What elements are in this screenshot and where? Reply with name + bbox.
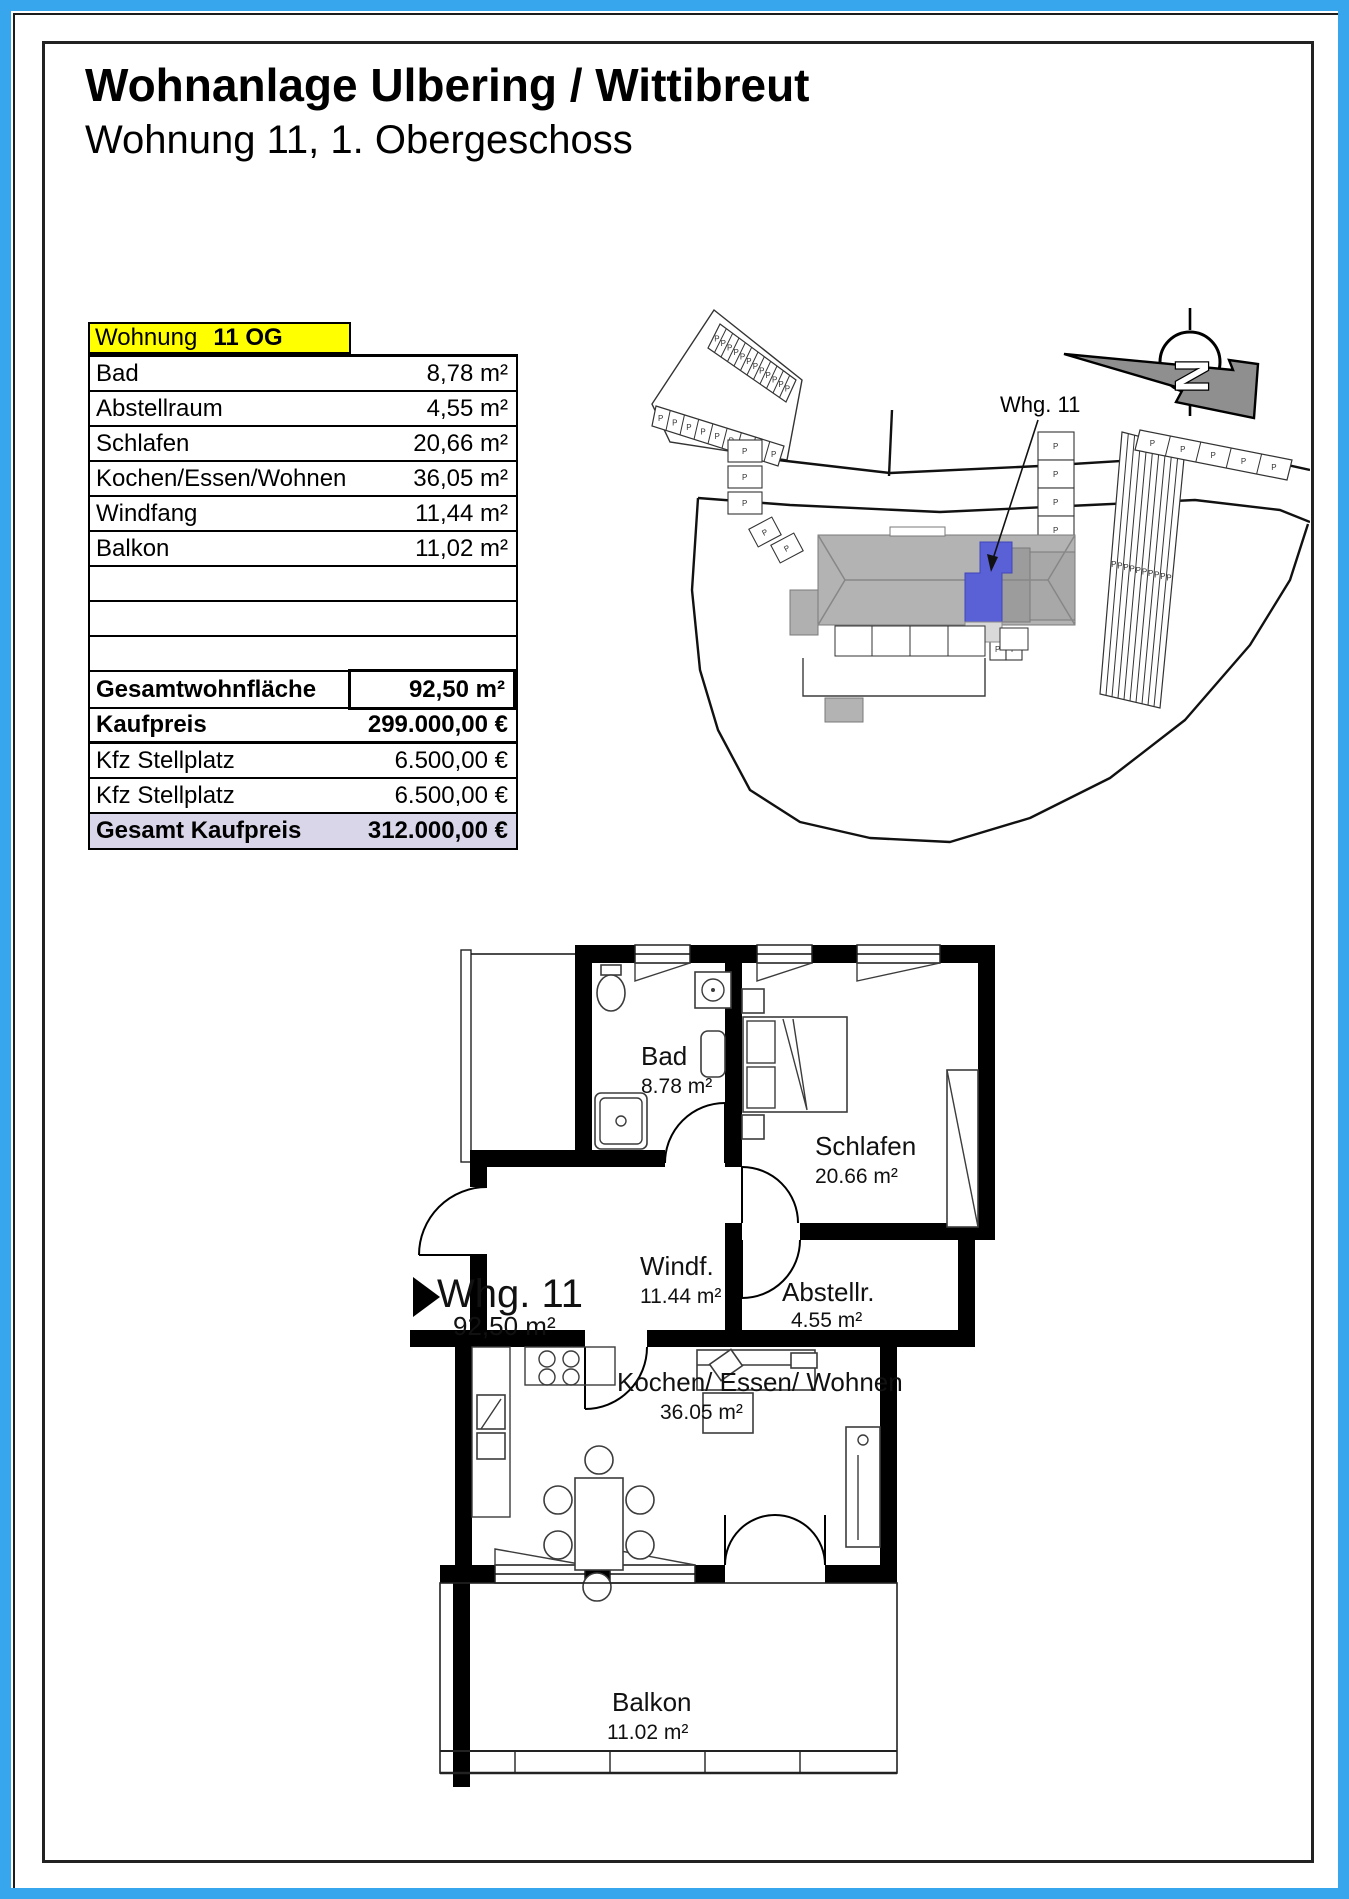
table-row-empty: [90, 602, 516, 637]
room-label-abstell: Abstellr.: [782, 1277, 875, 1307]
balcony: [440, 1583, 897, 1773]
parking-stall-label: P: [753, 362, 758, 371]
parking-stall-label: P: [1123, 563, 1128, 572]
room-label-schlafen: Schlafen: [815, 1131, 916, 1161]
gesamt-value: 312.000,00 €: [368, 817, 516, 845]
room-label: Bad: [90, 360, 139, 388]
north-letter: N: [1166, 359, 1218, 392]
room-label: Schlafen: [90, 430, 189, 458]
total-area-label: Gesamtwohnfläche: [90, 676, 316, 704]
room-label: Windfang: [90, 500, 197, 528]
parking-stall-label: P: [742, 473, 747, 482]
room-label: Abstellraum: [90, 395, 223, 423]
parking-stall-label: P: [1241, 457, 1246, 466]
room-value: 11,44 m²: [415, 500, 516, 528]
parking-stall-label: P: [1053, 498, 1058, 507]
parking-stall-label: P: [759, 366, 764, 375]
area-price-table: Wohnung 11 OG Bad 8,78 m² Abstellraum 4,…: [88, 322, 518, 850]
room-labels: Bad 8.78 m² Schlafen 20.66 m² Windf. 11.…: [437, 1041, 916, 1744]
stellplatz-row: Kfz Stellplatz 6.500,00 €: [90, 744, 516, 779]
room-area-windfang: 11.44 m²: [640, 1285, 721, 1308]
parking-stall-label: P: [1154, 570, 1159, 579]
room-area-abstell: 4.55 m²: [791, 1309, 862, 1332]
parking-stall-label: P: [740, 353, 745, 362]
table-header-cell: Wohnung 11 OG: [88, 322, 351, 354]
room-value: 4,55 m²: [427, 395, 516, 423]
expose-page: Wohnanlage Ulbering / Wittibreut Wohnung…: [0, 0, 1349, 1899]
kaufpreis-label: Kaufpreis: [90, 711, 207, 739]
parking-stall-label: P: [672, 419, 677, 428]
room-area-bad: 8.78 m²: [641, 1075, 712, 1098]
room-area-schlafen: 20.66 m²: [815, 1165, 898, 1188]
room-label-bad: Bad: [641, 1041, 687, 1071]
room-area-wohnen: 36.05 m²: [660, 1401, 743, 1424]
stellplatz-row: Kfz Stellplatz 6.500,00 €: [90, 779, 516, 814]
table-row-empty: [90, 567, 516, 602]
parking-stall-label: P: [1166, 573, 1171, 582]
room-value: 11,02 m²: [415, 535, 516, 563]
parking-stall-label: P: [721, 339, 726, 348]
parking-stall-label: P: [772, 376, 777, 385]
parking-stall-label: P: [1150, 439, 1155, 448]
parking-stall-label: P: [727, 343, 732, 352]
parking-stall-label: P: [1053, 470, 1058, 479]
floor-plan: Bad 8.78 m² Schlafen 20.66 m² Windf. 11.…: [395, 925, 1010, 1875]
parking-stall-label: P: [1160, 572, 1165, 581]
site-plan: PPPPPPPPPPPP PPPPPPPPP PPPPPPPPPP PPPPP …: [640, 290, 1310, 850]
parking-stall-label: P: [1180, 445, 1185, 454]
parking-stall-label: P: [715, 432, 720, 441]
parking-stall-label: P: [1142, 567, 1147, 576]
road-lower-line: [698, 498, 1310, 522]
parking-stall-label: P: [742, 499, 747, 508]
gesamt-kaufpreis-row: Gesamt Kaufpreis 312.000,00 €: [90, 814, 516, 848]
stellplatz-value: 6.500,00 €: [395, 782, 516, 810]
parking-stall-label: P: [686, 423, 691, 432]
stellplatz-value: 6.500,00 €: [395, 747, 516, 775]
table-row: Bad 8,78 m²: [90, 357, 516, 392]
page-title: Wohnanlage Ulbering / Wittibreut: [85, 58, 810, 112]
room-value: 8,78 m²: [427, 360, 516, 388]
table-row: Schlafen 20,66 m²: [90, 427, 516, 462]
total-area-row: Gesamtwohnfläche 92,50 m²: [90, 672, 516, 709]
total-area-value: 92,50 m²: [348, 669, 516, 710]
window-icon: [635, 945, 940, 981]
parking-row: PPPPPPPPPP: [1100, 432, 1185, 708]
table-row: Kochen/Essen/Wohnen 36,05 m²: [90, 462, 516, 497]
room-label-balkon: Balkon: [612, 1687, 692, 1717]
room-value: 36,05 m²: [413, 465, 516, 493]
parking-stall-label: P: [746, 357, 751, 366]
parking-stall-label: P: [778, 380, 783, 389]
apartment-area: 92,50 m²: [453, 1311, 556, 1341]
parking-stall-label: P: [1117, 561, 1122, 570]
boundary-tick: [889, 410, 892, 476]
parking-stall-label: P: [658, 414, 663, 423]
building-complex: [790, 527, 1075, 722]
stellplatz-label: Kfz Stellplatz: [90, 747, 235, 775]
entrance-arrow-icon: [413, 1277, 440, 1317]
parking-stall-label: P: [1053, 526, 1058, 535]
table-header-value: 11 OG: [213, 324, 282, 352]
table-row: Windfang 11,44 m²: [90, 497, 516, 532]
parking-stall-label: P: [1130, 564, 1135, 573]
north-compass-icon: N: [1064, 308, 1258, 418]
parking-stall-label: P: [785, 385, 790, 394]
table-body: Bad 8,78 m² Abstellraum 4,55 m² Schlafen…: [88, 354, 518, 850]
room-area-balkon: 11.02 m²: [607, 1721, 688, 1744]
table-header-label: Wohnung: [95, 324, 197, 352]
room-label-windfang: Windf.: [640, 1251, 714, 1281]
room-label: Kochen/Essen/Wohnen: [90, 465, 346, 493]
room-value: 20,66 m²: [413, 430, 516, 458]
parking-stall-label: P: [742, 447, 747, 456]
table-row: Balkon 11,02 m²: [90, 532, 516, 567]
kaufpreis-row: Kaufpreis 299.000,00 €: [90, 709, 516, 744]
parking-stall-label: P: [733, 348, 738, 357]
parking-stall-label: P: [1053, 442, 1058, 451]
table-row: Abstellraum 4,55 m²: [90, 392, 516, 427]
parking-stall-label: P: [1111, 560, 1116, 569]
apartment-label: Whg. 11: [437, 1272, 583, 1316]
room-label-wohnen: Kochen/ Essen/ Wohnen: [617, 1367, 903, 1397]
page-subtitle: Wohnung 11, 1. Obergeschoss: [85, 118, 633, 163]
parking-stall-label: P: [771, 450, 776, 459]
parking-stall-label: P: [1211, 451, 1216, 460]
bedroom-furniture: [742, 989, 978, 1227]
party-wall-line: [461, 950, 471, 1162]
parking-stall-label: P: [1136, 566, 1141, 575]
site-unit-label: Whg. 11: [1000, 392, 1080, 417]
parking-stall-label: P: [714, 334, 719, 343]
parking-stall-label: P: [700, 428, 705, 437]
stellplatz-label: Kfz Stellplatz: [90, 782, 235, 810]
parking-stall-label: P: [1271, 463, 1276, 472]
parking-stall-label: P: [766, 371, 771, 380]
table-row-empty: [90, 637, 516, 672]
kaufpreis-value: 299.000,00 €: [368, 711, 516, 739]
parking-stall-label: P: [1148, 569, 1153, 578]
gesamt-label: Gesamt Kaufpreis: [90, 817, 301, 845]
room-label: Balkon: [90, 535, 169, 563]
